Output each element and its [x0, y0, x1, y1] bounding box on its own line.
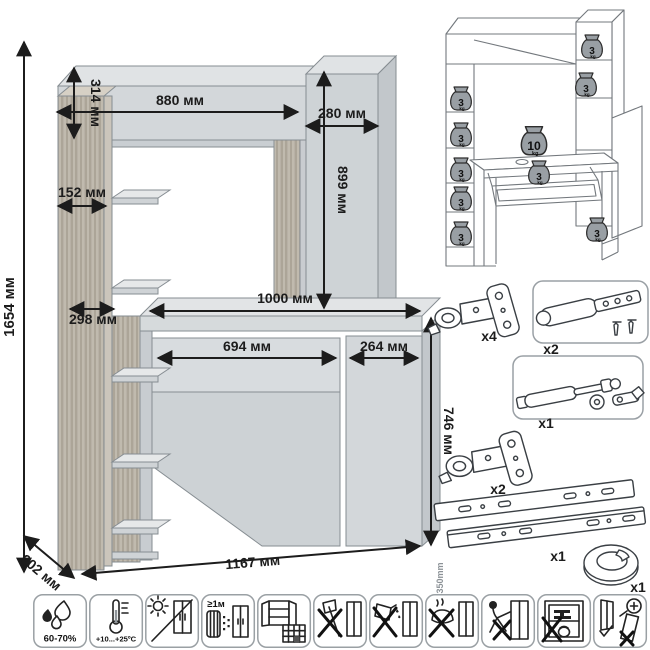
dim-hutch-height: 314 мм	[88, 79, 104, 127]
hinge2-count: x2	[490, 481, 506, 497]
dim-total-width: 1167 мм	[225, 552, 281, 572]
slides-count: x1	[550, 548, 566, 564]
icon-no-dragging	[482, 595, 535, 648]
icon-humidity: 60-70%	[34, 595, 87, 648]
lower-cabinet-door	[346, 336, 422, 546]
gas-lift-count: x1	[538, 415, 554, 431]
furniture-dimension-diagram: 1654 мм 314 мм 880 мм 280 мм 899 мм 152 …	[0, 0, 650, 650]
column-front-edge	[104, 96, 112, 566]
icon-no-solvents	[370, 595, 423, 648]
icon-no-hot-objects	[426, 595, 479, 648]
hinge-icon: x4	[428, 282, 521, 344]
svg-text:kg: kg	[459, 206, 465, 211]
icon-heat-source-distance: ≥1м	[202, 595, 255, 648]
icon-no-impacts	[314, 595, 367, 648]
temperature-label: +10...+25ºC	[96, 635, 137, 644]
weight-10kg: 10kg	[521, 127, 546, 157]
dim-drawer-width: 694 мм	[223, 338, 271, 354]
dim-hutch-width: 880 мм	[156, 92, 204, 108]
desktop-front-edge	[140, 316, 422, 331]
side-cabinet-side	[378, 56, 396, 316]
svg-text:kg: kg	[595, 237, 601, 242]
hardware-list: x4 x2	[428, 281, 648, 595]
humidity-label: 60-70%	[44, 634, 77, 645]
icon-temperature: +10...+25ºC	[90, 595, 143, 648]
svg-text:kg: kg	[590, 54, 596, 59]
care-icons-strip: 60-70% +10...+25ºC ≥1м	[34, 595, 647, 648]
grommet-count: x1	[630, 579, 646, 595]
slide-length-label: 350mm	[435, 562, 445, 593]
dim-side-cabinet-width: 280 мм	[318, 105, 366, 121]
dim-shelf-width: 298 мм	[69, 311, 117, 327]
desk-interior	[152, 392, 340, 546]
diagram-canvas: 1654 мм 314 мм 880 мм 280 мм 899 мм 152 …	[0, 0, 650, 650]
dim-shelf-depth: 152 мм	[58, 184, 106, 200]
shelf	[112, 280, 170, 294]
distance-label: ≥1м	[207, 599, 225, 610]
svg-text:kg: kg	[459, 106, 465, 111]
dim-desk-height: 746 мм	[441, 407, 457, 455]
dim-desktop-width: 1000 мм	[257, 290, 313, 306]
svg-text:kg: kg	[459, 142, 465, 147]
svg-text:kg: kg	[584, 92, 590, 97]
dim-door-width: 264 мм	[360, 338, 408, 354]
svg-text:kg: kg	[459, 177, 465, 182]
load-capacity-diagram: 3kg 3kg 3kg 3kg 3kg 3kg 3kg 10kg 3kg 3kg	[446, 10, 642, 266]
hinge-count: x4	[481, 328, 497, 344]
svg-text:kg: kg	[532, 151, 538, 157]
column-base	[112, 552, 158, 559]
icon-no-direct-sunlight	[146, 595, 199, 648]
icon-no-overload	[538, 595, 591, 648]
icon-anchor-tip-over	[594, 595, 647, 648]
svg-text:kg: kg	[459, 241, 465, 246]
damper-count: x2	[543, 341, 559, 357]
dim-opening-height: 899 мм	[335, 166, 351, 214]
dim-total-height: 1654 мм	[1, 277, 18, 337]
shelf	[112, 520, 170, 534]
icon-level-floor	[258, 595, 311, 648]
shelf	[112, 190, 170, 204]
gas-lift-box	[513, 356, 643, 419]
column-side-panel	[58, 96, 104, 570]
svg-text:kg: kg	[537, 180, 543, 185]
